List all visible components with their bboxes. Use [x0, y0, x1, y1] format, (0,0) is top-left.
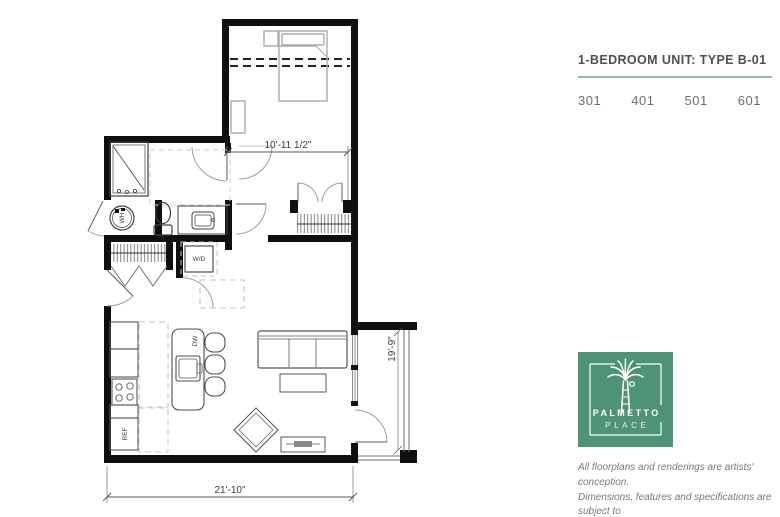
windows-and-railing [351, 330, 409, 460]
label-refrigerator: REF [122, 427, 129, 440]
island [172, 329, 204, 410]
stove [112, 379, 137, 405]
disclaimer-text: All floorplans and renderings are artist… [578, 461, 780, 517]
title-underline [578, 76, 772, 78]
accent-chair [234, 408, 278, 452]
sofa [258, 331, 347, 368]
bedroom-furniture [231, 31, 327, 133]
dim-balcony-depth: 19'-9" [387, 336, 398, 362]
bedroom-dashed-header [230, 59, 350, 66]
floorplan-drawing: 10'-11 1/2" 21'-10" 19'-9" W/D REF DW WH [0, 0, 460, 517]
label-dishwasher: DW [192, 335, 199, 347]
unit-number: 401 [631, 93, 654, 108]
logo-subname: PLACE [578, 421, 673, 430]
dim-overall-width: 21'-10" [214, 485, 245, 496]
label-washer-dryer: W/D [193, 256, 206, 263]
disclaimer-line: Dimensions, features and specifications … [578, 491, 780, 517]
unit-number-row: 301 401 501 601 [578, 93, 761, 108]
unit-type-title: 1-BEDROOM UNIT: TYPE B-01 [578, 53, 772, 67]
stool [205, 355, 225, 374]
coffee-table [280, 374, 326, 392]
vanity [178, 206, 227, 234]
logo-name: PALMETTO [578, 408, 673, 418]
floorplan-flyer-page: 10'-11 1/2" 21'-10" 19'-9" W/D REF DW WH… [0, 0, 780, 517]
unit-number: 501 [685, 93, 708, 108]
disclaimer-line: All floorplans and renderings are artist… [578, 461, 780, 491]
label-water-heater: WH [119, 212, 126, 223]
info-panel: 1-BEDROOM UNIT: TYPE B-01 301 401 501 60… [578, 53, 772, 108]
palmetto-place-logo: PALMETTO PLACE [578, 352, 673, 447]
dim-bedroom-width: 10'-11 1/2" [265, 140, 312, 151]
kitchen [110, 280, 244, 452]
unit-number: 601 [738, 93, 761, 108]
unit-number: 301 [578, 93, 601, 108]
bathroom-fixtures [110, 142, 230, 239]
palm-tree-icon [578, 352, 673, 447]
living-room [234, 331, 347, 452]
stool [205, 377, 225, 396]
stool [205, 333, 225, 352]
